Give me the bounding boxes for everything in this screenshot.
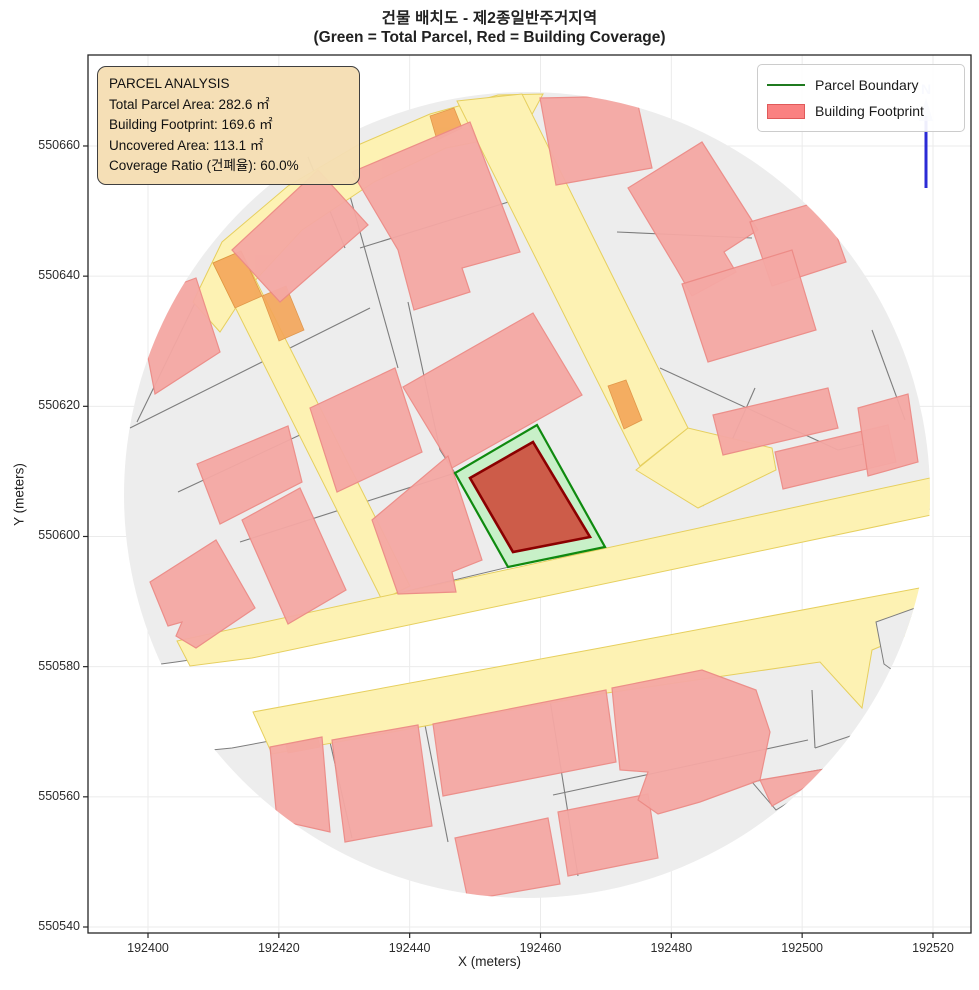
legend: Parcel Boundary Building Footprint bbox=[757, 64, 965, 132]
x-tick-label: 192480 bbox=[636, 941, 706, 955]
legend-item-building-footprint: Building Footprint bbox=[767, 98, 954, 124]
green-line-swatch bbox=[767, 84, 805, 86]
legend-item-parcel-boundary: Parcel Boundary bbox=[767, 72, 954, 98]
building-polygon bbox=[858, 394, 918, 476]
y-tick-label: 550560 bbox=[16, 789, 80, 803]
legend-label: Building Footprint bbox=[815, 103, 924, 119]
y-tick-label: 550640 bbox=[16, 268, 80, 282]
y-tick-label: 550540 bbox=[16, 919, 80, 933]
x-tick-label: 192420 bbox=[244, 941, 314, 955]
x-axis-label: X (meters) bbox=[0, 954, 979, 969]
y-tick-label: 550600 bbox=[16, 528, 80, 542]
x-tick-label: 192460 bbox=[505, 941, 575, 955]
analysis-title: PARCEL ANALYSIS bbox=[109, 74, 348, 95]
figure-canvas: N 건물 배치도 - 제2종일반주거지역 (Green = Total Parc… bbox=[0, 0, 979, 990]
parcel-analysis-box: PARCEL ANALYSIS Total Parcel Area: 282.6… bbox=[97, 66, 360, 185]
analysis-uncovered: Uncovered Area: 113.1 ㎡ bbox=[109, 136, 348, 157]
chart-subtitle: (Green = Total Parcel, Red = Building Co… bbox=[0, 29, 979, 47]
x-tick-label: 192400 bbox=[113, 941, 183, 955]
red-patch-swatch bbox=[767, 104, 805, 119]
y-tick-label: 550580 bbox=[16, 659, 80, 673]
chart-title: 건물 배치도 - 제2종일반주거지역 bbox=[0, 6, 979, 28]
y-tick-label: 550620 bbox=[16, 398, 80, 412]
legend-label: Parcel Boundary bbox=[815, 77, 919, 93]
analysis-footprint: Building Footprint: 169.6 ㎡ bbox=[109, 115, 348, 136]
x-tick-label: 192520 bbox=[898, 941, 968, 955]
x-tick-label: 192440 bbox=[375, 941, 445, 955]
analysis-total-area: Total Parcel Area: 282.6 ㎡ bbox=[109, 95, 348, 116]
y-tick-label: 550660 bbox=[16, 138, 80, 152]
building-polygon bbox=[332, 725, 432, 842]
analysis-coverage-ratio: Coverage Ratio (건폐율): 60.0% bbox=[109, 156, 348, 177]
x-tick-label: 192500 bbox=[767, 941, 837, 955]
